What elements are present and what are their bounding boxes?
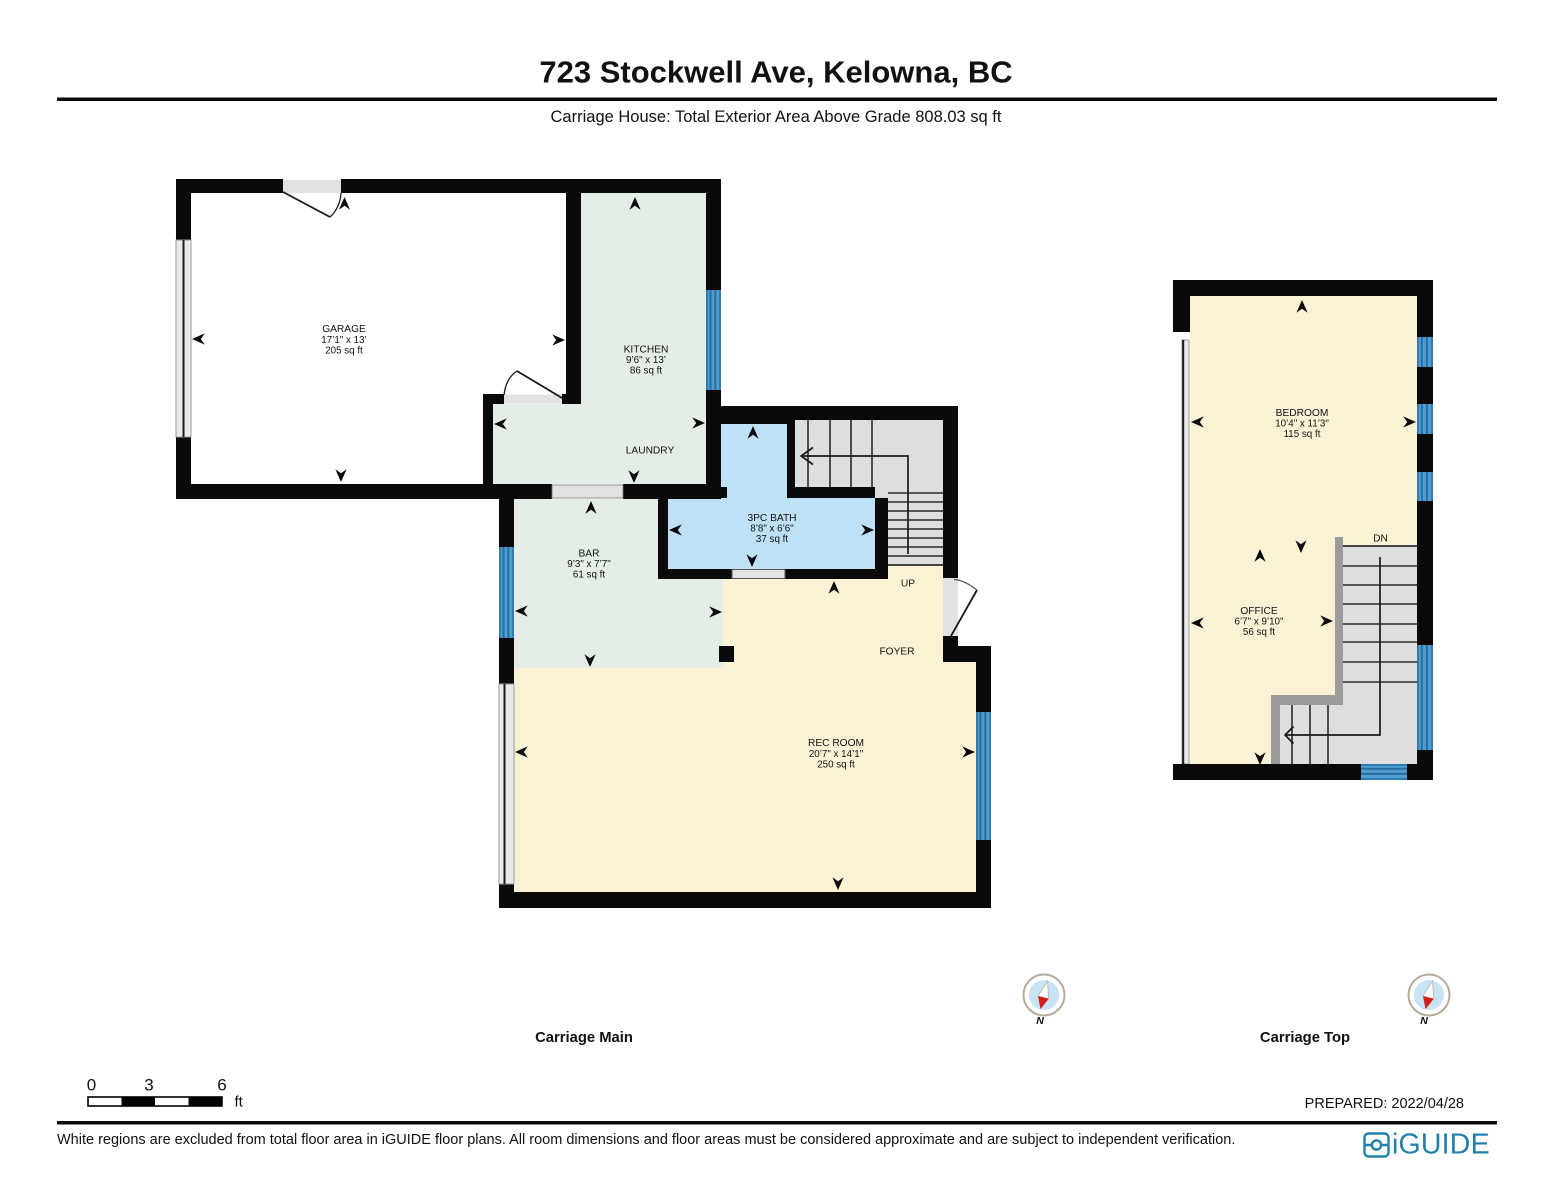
svg-text:BAR: BAR [579, 548, 600, 559]
svg-text:61 sq ft: 61 sq ft [573, 570, 605, 581]
svg-text:OFFICE: OFFICE [1240, 606, 1278, 617]
svg-text:205 sq ft: 205 sq ft [325, 345, 363, 356]
svg-text:115 sq ft: 115 sq ft [1284, 429, 1321, 440]
svg-text:3: 3 [144, 1076, 153, 1095]
svg-text:Carriage Main: Carriage Main [535, 1030, 633, 1046]
svg-text:3PC BATH: 3PC BATH [747, 513, 796, 524]
svg-text:0: 0 [87, 1076, 96, 1095]
svg-text:N: N [1420, 1015, 1428, 1027]
svg-text:GARAGE: GARAGE [322, 324, 366, 335]
svg-text:20’7" x 14’1": 20’7" x 14’1" [809, 749, 864, 760]
svg-text:86 sq ft: 86 sq ft [630, 366, 662, 377]
svg-text:Carriage Top: Carriage Top [1260, 1030, 1350, 1046]
svg-text:Carriage House: Total Exterior: Carriage House: Total Exterior Area Abov… [551, 108, 1002, 126]
svg-text:N: N [1036, 1015, 1044, 1027]
svg-text:9’3" x 7’7": 9’3" x 7’7" [567, 559, 611, 570]
svg-text:REC ROOM: REC ROOM [808, 738, 864, 749]
svg-text:723 Stockwell Ave, Kelowna, BC: 723 Stockwell Ave, Kelowna, BC [539, 55, 1012, 90]
svg-text:17’1" x 13’: 17’1" x 13’ [321, 335, 366, 346]
svg-text:9’6" x 13’: 9’6" x 13’ [626, 355, 666, 366]
svg-text:37 sq ft: 37 sq ft [756, 534, 788, 545]
svg-text:FOYER: FOYER [879, 647, 914, 658]
svg-text:BEDROOM: BEDROOM [1276, 408, 1329, 419]
svg-text:6: 6 [217, 1076, 226, 1095]
svg-text:iGUIDE: iGUIDE [1392, 1129, 1490, 1161]
svg-text:10’4" x 11’3": 10’4" x 11’3" [1275, 419, 1329, 430]
svg-text:8’8" x 6’6": 8’8" x 6’6" [750, 524, 794, 535]
svg-text:KITCHEN: KITCHEN [624, 344, 669, 355]
svg-text:White regions are excluded fro: White regions are excluded from total fl… [57, 1132, 1235, 1148]
svg-text:UP: UP [901, 579, 915, 590]
svg-text:ft: ft [235, 1094, 244, 1111]
svg-text:56 sq ft: 56 sq ft [1243, 627, 1275, 638]
svg-text:250 sq ft: 250 sq ft [817, 759, 855, 770]
svg-text:DN: DN [1373, 534, 1388, 545]
svg-text:PREPARED: 2022/04/28: PREPARED: 2022/04/28 [1305, 1096, 1464, 1112]
svg-text:6’7" x 9’10": 6’7" x 9’10" [1235, 617, 1284, 628]
svg-text:LAUNDRY: LAUNDRY [626, 446, 675, 457]
